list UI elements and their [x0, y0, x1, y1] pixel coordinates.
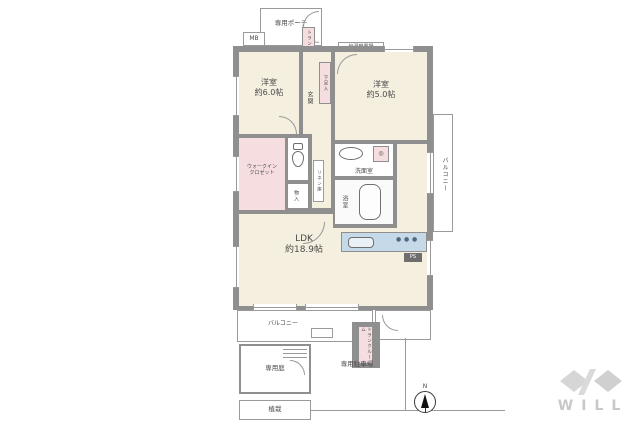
- storage-closet: 物入: [288, 184, 308, 208]
- linen-closet: リネン庫: [313, 160, 324, 202]
- bathroom: 浴室: [335, 180, 393, 224]
- ground-line: [307, 410, 505, 411]
- toilet-tank-icon: [293, 143, 303, 150]
- parking-boundary-line: [405, 338, 406, 410]
- compass-icon: [414, 391, 436, 413]
- ldk-area: [397, 144, 427, 230]
- bathroom-label: 浴室: [340, 188, 349, 216]
- compass: N: [408, 383, 442, 421]
- stove-burner-icon: ●: [396, 237, 402, 243]
- step: [311, 328, 333, 338]
- compass-north-label: N: [408, 383, 442, 391]
- room-west-6-size: 約6.0帖: [255, 88, 284, 98]
- stove-burner-icon: ●: [404, 237, 410, 243]
- stove-burner-icon: ●: [412, 237, 418, 243]
- window: [384, 46, 414, 52]
- room-west-5-size: 約5.0帖: [367, 90, 396, 100]
- floorplan-canvas: 専用ポーチ MB トランクルーム 給湯機置場 洋室 約6.0帖 玄関 下足入 リ…: [0, 0, 640, 427]
- toilet-room: [288, 138, 308, 180]
- service-exit-area: [375, 310, 431, 340]
- bathtub-icon: [359, 184, 381, 220]
- room-door-arc: [337, 54, 357, 74]
- sink-icon: [339, 147, 363, 160]
- window: [233, 156, 239, 192]
- window: [233, 246, 239, 288]
- kitchen-sink-icon: [348, 237, 374, 248]
- window: [427, 240, 433, 276]
- room-west-6-name: 洋室: [261, 78, 277, 88]
- trunk-room-bottom: トランクルーム: [359, 327, 372, 363]
- exit-door-arc: [382, 315, 398, 331]
- pipe-space: PS: [404, 253, 422, 262]
- room-door-arc: [279, 116, 297, 134]
- stove-icon: ● ● ●: [396, 237, 418, 249]
- compass-needle-icon: [421, 394, 429, 408]
- meter-box: MB: [243, 32, 265, 46]
- balcony-right: バルコニー: [433, 114, 453, 232]
- room-west-5-name: 洋室: [373, 80, 389, 90]
- hallway: リネン庫: [312, 134, 331, 208]
- private-garden: 専用庭: [239, 344, 311, 394]
- washer-space-icon: ◎: [373, 146, 389, 162]
- will-logo-text: WILL: [546, 398, 640, 416]
- entrance-hall: 玄関 下足入: [303, 52, 331, 134]
- balcony-bottom-label: バルコニー: [248, 320, 318, 328]
- washroom: ◎ 洗面室: [335, 144, 393, 176]
- walk-in-closet: ウォークイン クロゼット: [239, 138, 285, 210]
- room-west-5: 洋室 約5.0帖: [335, 52, 427, 140]
- will-logo-mark-icon: [546, 368, 640, 398]
- planting-area: 植栽: [239, 400, 311, 420]
- toilet-icon: [292, 151, 304, 167]
- private-parking-label: 専用駐車場: [312, 360, 402, 368]
- ldk-size: 約18.9帖: [285, 245, 323, 256]
- planting-label: 植栽: [240, 405, 310, 413]
- balcony-right-label: バルコニー: [440, 135, 449, 213]
- entrance-label: 玄関: [305, 80, 314, 116]
- garden-door-arc: [290, 360, 305, 375]
- shoe-cabinet: 下足入: [319, 62, 331, 104]
- wic-label-line2: クロゼット: [249, 170, 274, 176]
- washroom-label: 洗面室: [335, 168, 393, 176]
- room-west-6: 洋室 約6.0帖: [239, 52, 299, 134]
- storage-label: 物入: [293, 186, 300, 206]
- kitchen-counter: ● ● ●: [341, 232, 427, 252]
- porch-door-arc: [303, 11, 319, 27]
- will-logo: WILL: [546, 368, 640, 416]
- window: [233, 76, 239, 116]
